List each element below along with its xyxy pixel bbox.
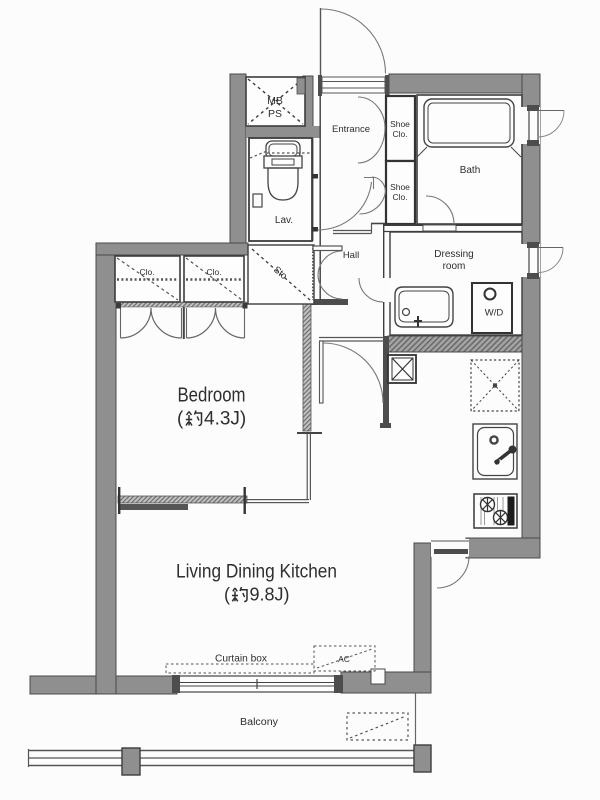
- svg-text:Bath: Bath: [460, 165, 481, 176]
- svg-text:9.8J): 9.8J): [250, 585, 290, 605]
- svg-text:Clo.: Clo.: [139, 267, 154, 277]
- svg-text:Dressing: Dressing: [434, 249, 473, 260]
- svg-text:(: (: [177, 409, 184, 430]
- svg-text:PS: PS: [268, 108, 282, 120]
- svg-text:AC: AC: [338, 654, 350, 664]
- svg-text:Shoe: Shoe: [390, 119, 410, 129]
- svg-text:Lav.: Lav.: [275, 215, 293, 226]
- svg-text:Hall: Hall: [343, 250, 359, 261]
- svg-text:Clo.: Clo.: [392, 192, 407, 202]
- svg-text:room: room: [443, 261, 466, 272]
- svg-text:Balcony: Balcony: [240, 717, 278, 728]
- svg-text:4.3J): 4.3J): [204, 409, 246, 430]
- svg-text:Shoe: Shoe: [390, 182, 410, 192]
- svg-text:Curtain box: Curtain box: [215, 654, 267, 665]
- svg-text:Bedroom: Bedroom: [178, 385, 246, 407]
- svg-text:Clo.: Clo.: [206, 267, 221, 277]
- svg-text:Clo.: Clo.: [392, 129, 407, 139]
- svg-text:Entrance: Entrance: [332, 124, 370, 135]
- svg-text:(: (: [224, 585, 230, 605]
- svg-text:MB: MB: [267, 95, 283, 107]
- svg-text:W/D: W/D: [485, 308, 504, 319]
- svg-text:Living Dining Kitchen: Living Dining Kitchen: [176, 562, 337, 583]
